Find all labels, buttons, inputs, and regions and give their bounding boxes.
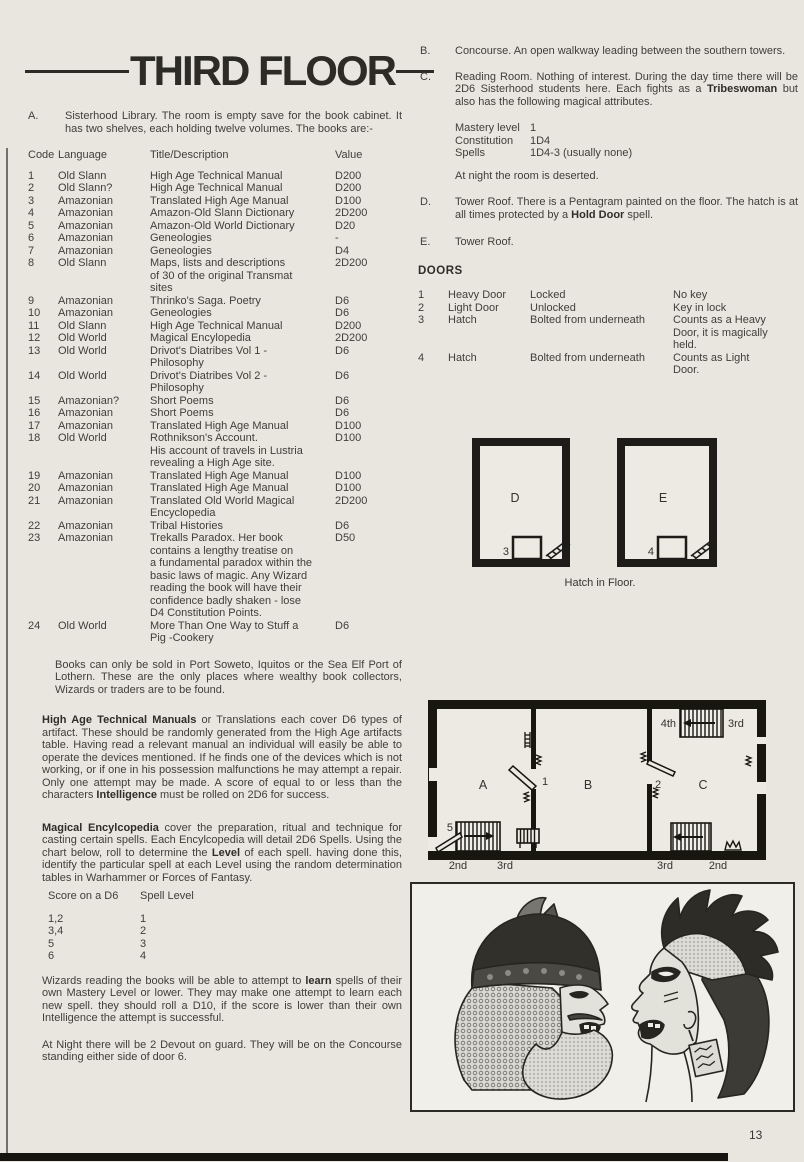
roof-diagram-caption: Hatch in Floor. xyxy=(455,577,745,589)
warrior-vs-punk-illustration xyxy=(412,884,793,1110)
book-code: 14 xyxy=(28,370,58,395)
book-value: D6 xyxy=(335,395,390,408)
label-2nd-bottom-right: 2nd xyxy=(709,860,727,872)
book-title: High Age Technical Manual xyxy=(150,182,335,195)
doors-table-row: 1 Heavy Door Locked No key xyxy=(418,289,798,302)
book-table-row: 8 Old Slann Maps, lists and descriptions… xyxy=(28,257,402,295)
book-table-row: 22 Amazonian Tribal Histories D6 xyxy=(28,520,402,533)
book-value: D4 xyxy=(335,245,390,258)
book-code: 15 xyxy=(28,395,58,408)
wall-bc-upper xyxy=(647,709,652,762)
book-code: 8 xyxy=(28,257,58,295)
book-table-row: 9 Amazonian Thrinko's Saga. Poetry D6 xyxy=(28,295,402,308)
door-state: Bolted from underneath xyxy=(530,314,673,352)
book-language: Old Slann? xyxy=(58,182,150,195)
spell-level: 2 xyxy=(140,925,402,938)
earring-icon xyxy=(689,1039,723,1076)
book-value: D6 xyxy=(335,370,390,395)
book-value: 2D200 xyxy=(335,332,390,345)
door-note: Counts as Light Door. xyxy=(673,352,791,377)
book-language: Amazonian? xyxy=(58,395,150,408)
doors-heading: DOORS xyxy=(418,265,798,278)
third-floor-plan: A B C 1 2 4th 3rd 3rd 2nd xyxy=(428,698,768,874)
doors-table-row: 2 Light Door Unlocked Key in lock xyxy=(418,302,798,315)
book-language: Old Slann xyxy=(58,257,150,295)
book-title: Geneologies xyxy=(150,232,335,245)
room-e-letter: E xyxy=(659,491,667,505)
book-value: 2D200 xyxy=(335,495,390,520)
book-table-row: 21 Amazonian Translated Old World Magica… xyxy=(28,495,402,520)
page-title: THIRD FLOOR xyxy=(129,65,396,78)
stairs-4th-3rd-icon xyxy=(680,709,723,737)
book-code: 7 xyxy=(28,245,58,258)
book-value: D6 xyxy=(335,307,390,320)
door-5-number: 5 xyxy=(447,822,453,834)
book-value: D6 xyxy=(335,407,390,420)
book-value: D100 xyxy=(335,195,390,208)
bold-hold-door: Hold Door xyxy=(571,209,624,221)
book-code: 9 xyxy=(28,295,58,308)
label-4th: 4th xyxy=(661,718,676,730)
book-language: Amazonian xyxy=(58,295,150,308)
scanned-book-page: THIRD FLOOR A. Sisterhood Library. The r… xyxy=(0,0,804,1162)
header-language: Language xyxy=(58,149,150,162)
book-table-header: Code Language Title/Description Value xyxy=(28,149,402,162)
book-code: 20 xyxy=(28,482,58,495)
book-table-row: 18 Old World Rothnikson's Account. His a… xyxy=(28,432,402,470)
book-language: Old Slann xyxy=(58,170,150,183)
book-language: Amazonian xyxy=(58,495,150,520)
book-code: 23 xyxy=(28,532,58,620)
para-wizards-learn: Wizards reading the books will be able t… xyxy=(42,975,402,1025)
book-value: D50 xyxy=(335,532,390,620)
book-table-row: 23 Amazonian Trekalls Paradox. Her book … xyxy=(28,532,402,620)
book-language: Amazonian xyxy=(58,532,150,620)
para-text: must be rolled on 2D6 for success. xyxy=(157,789,329,801)
book-table-row: 24 Old World More Than One Way to Stuff … xyxy=(28,620,402,645)
door-state: Locked xyxy=(530,289,673,302)
book-table-row: 2 Old Slann? High Age Technical Manual D… xyxy=(28,182,402,195)
stat-name: Spells xyxy=(455,147,530,160)
stat-row: Mastery level 1 xyxy=(455,122,798,135)
stat-name: Constitution xyxy=(455,135,530,148)
book-code: 11 xyxy=(28,320,58,333)
scan-edge-left xyxy=(6,148,8,1156)
right-wall-slit-lower xyxy=(757,782,766,794)
book-value: D100 xyxy=(335,482,390,495)
left-wall-slit xyxy=(429,768,437,781)
spell-table-row: 3,4 2 xyxy=(48,925,402,938)
stat-row: Spells 1D4-3 (usually none) xyxy=(455,147,798,160)
book-code: 19 xyxy=(28,470,58,483)
door-number: 2 xyxy=(418,302,448,315)
section-d-label: D. xyxy=(420,196,431,209)
book-title: Drivot's Diatribes Vol 1 - Philosophy xyxy=(150,345,335,370)
door-note: Counts as a Heavy Door, it is magically … xyxy=(673,314,791,352)
title-rule-left xyxy=(25,70,129,73)
wall-ab-upper xyxy=(531,709,536,769)
door-type: Heavy Door xyxy=(448,289,530,302)
book-value: D100 xyxy=(335,432,390,470)
bold-intelligence: Intelligence xyxy=(96,789,157,801)
spell-table-rows: 1,2 1 3,4 2 5 3 6 4 xyxy=(48,913,402,963)
book-language: Old World xyxy=(58,370,150,395)
door-note: Key in lock xyxy=(673,302,791,315)
warrior-head-drawing xyxy=(455,898,612,1099)
doors-table-row: 4 Hatch Bolted from underneath Counts as… xyxy=(418,352,798,377)
spell-score: 6 xyxy=(48,950,140,963)
book-code: 16 xyxy=(28,407,58,420)
label-3rd-bottom-left: 3rd xyxy=(497,860,513,872)
hatch-3-icon xyxy=(513,537,541,559)
bold-level: Level xyxy=(212,847,240,859)
book-value: D6 xyxy=(335,620,390,645)
book-table-row: 11 Old Slann High Age Technical Manual D… xyxy=(28,320,402,333)
section-c-label: C. xyxy=(420,71,431,84)
book-code: 13 xyxy=(28,345,58,370)
book-title: Geneologies xyxy=(150,307,335,320)
para-text: Wizards reading the books will be able t… xyxy=(42,975,305,987)
book-table-row: 15 Amazonian? Short Poems D6 xyxy=(28,395,402,408)
book-code: 18 xyxy=(28,432,58,470)
book-title: Translated High Age Manual xyxy=(150,420,335,433)
book-value: D200 xyxy=(335,170,390,183)
door-number: 3 xyxy=(418,314,448,352)
tower-roof-diagram: D 3 E 4 xyxy=(455,430,745,590)
room-d-plan: D 3 xyxy=(472,438,570,567)
book-code: 5 xyxy=(28,220,58,233)
book-value: D100 xyxy=(335,420,390,433)
door-type: Hatch xyxy=(448,352,530,377)
section-d: D. Tower Roof. There is a Pentagram pain… xyxy=(415,196,798,221)
page-title-row: THIRD FLOOR xyxy=(25,48,402,94)
section-b-text: Concourse. An open walkway leading betwe… xyxy=(455,45,785,57)
book-code: 22 xyxy=(28,520,58,533)
book-title: Amazon-Old World Dictionary xyxy=(150,220,335,233)
book-code: 10 xyxy=(28,307,58,320)
book-language: Old World xyxy=(58,620,150,645)
section-b: B. Concourse. An open walkway leading be… xyxy=(415,45,798,58)
book-table-row: 3 Amazonian Translated High Age Manual D… xyxy=(28,195,402,208)
spell-score: 5 xyxy=(48,938,140,951)
room-e-plan: E 4 xyxy=(617,438,717,567)
para-at-night: At Night there will be 2 Devout on guard… xyxy=(42,1039,402,1064)
section-e-text: Tower Roof. xyxy=(455,236,514,248)
warrior-eye xyxy=(570,992,588,998)
book-language: Old World xyxy=(58,332,150,345)
section-a-text: Sisterhood Library. The room is empty sa… xyxy=(65,110,402,135)
book-value: D20 xyxy=(335,220,390,233)
stairs-2nd-3rd-icon xyxy=(456,822,500,851)
stairs-3rd-2nd-icon xyxy=(671,823,711,851)
book-value: - xyxy=(335,232,390,245)
spell-table-row: 6 4 xyxy=(48,950,402,963)
spell-level: 1 xyxy=(140,913,402,926)
book-table-row: 6 Amazonian Geneologies - xyxy=(28,232,402,245)
doors-table-row: 3 Hatch Bolted from underneath Counts as… xyxy=(418,314,798,352)
book-language: Amazonian xyxy=(58,195,150,208)
spell-table-header: Score on a D6 Spell Level xyxy=(48,890,402,903)
section-a: A. Sisterhood Library. The room is empty… xyxy=(25,110,402,135)
book-language: Amazonian xyxy=(58,307,150,320)
label-2nd-bottom-left: 2nd xyxy=(449,860,467,872)
book-title: Translated High Age Manual xyxy=(150,195,335,208)
book-language: Amazonian xyxy=(58,407,150,420)
bold-magical-encyclopedia: Magical Encylcopedia xyxy=(42,822,159,834)
room-c-letter: C xyxy=(698,778,707,792)
door-1-number: 1 xyxy=(542,776,548,788)
section-e: E. Tower Roof. xyxy=(415,236,798,249)
book-title: More Than One Way to Stuff a Pig -Cooker… xyxy=(150,620,335,645)
book-title: Maps, lists and descriptions of 30 of th… xyxy=(150,257,335,295)
book-title: Translated Old World Magical Encyclopedi… xyxy=(150,495,335,520)
book-code: 1 xyxy=(28,170,58,183)
stat-value: 1D4 xyxy=(530,135,798,148)
book-code: 4 xyxy=(28,207,58,220)
right-column: B. Concourse. An open walkway leading be… xyxy=(415,40,798,377)
book-language: Old World xyxy=(58,432,150,470)
label-3rd-bottom: 3rd xyxy=(657,860,673,872)
book-language: Amazonian xyxy=(58,207,150,220)
book-language: Amazonian xyxy=(58,220,150,233)
book-value: D200 xyxy=(335,182,390,195)
book-title: High Age Technical Manual xyxy=(150,320,335,333)
hatch-3-number: 3 xyxy=(503,546,509,558)
book-title: Magical Encylopedia xyxy=(150,332,335,345)
book-code: 17 xyxy=(28,420,58,433)
door-number: 4 xyxy=(418,352,448,377)
book-code: 21 xyxy=(28,495,58,520)
book-value: D200 xyxy=(335,320,390,333)
book-language: Amazonian xyxy=(58,232,150,245)
book-language: Old Slann xyxy=(58,320,150,333)
bold-learn: learn xyxy=(305,975,331,987)
spell-score: 3,4 xyxy=(48,925,140,938)
para-text: or Translations each cover D6 types of a… xyxy=(42,714,402,801)
stat-value: 1 xyxy=(530,122,798,135)
spell-level: 4 xyxy=(140,950,402,963)
book-table-row: 10 Amazonian Geneologies D6 xyxy=(28,307,402,320)
spell-table-row: 5 3 xyxy=(48,938,402,951)
book-code: 3 xyxy=(28,195,58,208)
book-table-row: 4 Amazonian Amazon-Old Slann Dictionary … xyxy=(28,207,402,220)
wall-bc-lower xyxy=(647,784,652,851)
punk-head-drawing xyxy=(632,890,778,1102)
room-b-letter: B xyxy=(584,778,592,792)
para-books-sold: Books can only be sold in Port Soweto, I… xyxy=(55,659,402,697)
book-value: 2D200 xyxy=(335,207,390,220)
book-value: D6 xyxy=(335,520,390,533)
scan-edge-bottom xyxy=(0,1153,728,1161)
hatch-4-icon xyxy=(658,537,686,559)
stat-row: Constitution 1D4 xyxy=(455,135,798,148)
doors-table: 1 Heavy Door Locked No key 2 Light Door … xyxy=(418,289,798,377)
section-b-label: B. xyxy=(420,45,430,58)
door-type: Light Door xyxy=(448,302,530,315)
reading-room-night: At night the room is deserted. xyxy=(455,170,798,183)
section-e-label: E. xyxy=(420,236,430,249)
book-title: Rothnikson's Account. His account of tra… xyxy=(150,432,335,470)
room-d-letter: D xyxy=(510,491,519,505)
book-table-row: 17 Amazonian Translated High Age Manual … xyxy=(28,420,402,433)
right-wall-slit-upper xyxy=(757,737,766,744)
section-a-label: A. xyxy=(28,110,38,123)
book-table-row: 1 Old Slann High Age Technical Manual D2… xyxy=(28,170,402,183)
book-table-row: 13 Old World Drivot's Diatribes Vol 1 - … xyxy=(28,345,402,370)
book-table-row: 16 Amazonian Short Poems D6 xyxy=(28,407,402,420)
book-title: Thrinko's Saga. Poetry xyxy=(150,295,335,308)
header-value: Value xyxy=(335,149,390,162)
para-magical-encyclopedia: Magical Encylcopedia cover the preparati… xyxy=(42,822,402,885)
book-table-row: 7 Amazonian Geneologies D4 xyxy=(28,245,402,258)
bold-high-age-manuals: High Age Technical Manuals xyxy=(42,714,196,726)
book-title: High Age Technical Manual xyxy=(150,170,335,183)
book-title: Drivot's Diatribes Vol 2 - Philosophy xyxy=(150,370,335,395)
book-table-row: 20 Amazonian Translated High Age Manual … xyxy=(28,482,402,495)
book-title: Amazon-Old Slann Dictionary xyxy=(150,207,335,220)
book-table-row: 5 Amazonian Amazon-Old World Dictionary … xyxy=(28,220,402,233)
label-3rd-top: 3rd xyxy=(728,718,744,730)
book-language: Amazonian xyxy=(58,482,150,495)
book-title: Short Poems xyxy=(150,395,335,408)
book-language: Amazonian xyxy=(58,470,150,483)
book-language: Amazonian xyxy=(58,245,150,258)
book-title: Translated High Age Manual xyxy=(150,470,335,483)
spell-table-row: 1,2 1 xyxy=(48,913,402,926)
bold-tribeswoman: Tribeswoman xyxy=(707,83,777,95)
hatch-4-number: 4 xyxy=(648,546,654,558)
page-number: 13 xyxy=(749,1128,762,1142)
door-state: Bolted from underneath xyxy=(530,352,673,377)
book-code: 6 xyxy=(28,232,58,245)
book-title: Tribal Histories xyxy=(150,520,335,533)
book-value: D6 xyxy=(335,345,390,370)
student-stats: Mastery level 1 Constitution 1D4 Spells … xyxy=(455,122,798,160)
left-column: THIRD FLOOR A. Sisterhood Library. The r… xyxy=(25,40,402,1064)
spell-col1-header: Score on a D6 xyxy=(48,890,140,903)
para-text: spell. xyxy=(624,209,653,221)
book-table-row: 14 Old World Drivot's Diatribes Vol 2 - … xyxy=(28,370,402,395)
para-high-age-manuals: High Age Technical Manuals or Translatio… xyxy=(42,714,402,802)
book-table-row: 19 Amazonian Translated High Age Manual … xyxy=(28,470,402,483)
book-title: Short Poems xyxy=(150,407,335,420)
illustration-frame xyxy=(410,882,795,1112)
door-note: No key xyxy=(673,289,791,302)
stat-value: 1D4-3 (usually none) xyxy=(530,147,798,160)
header-title: Title/Description xyxy=(150,149,335,162)
book-table-row: 12 Old World Magical Encylopedia 2D200 xyxy=(28,332,402,345)
book-code: 24 xyxy=(28,620,58,645)
spell-level: 3 xyxy=(140,938,402,951)
door-type: Hatch xyxy=(448,314,530,352)
door-number: 1 xyxy=(418,289,448,302)
book-value: D6 xyxy=(335,295,390,308)
book-value: 2D200 xyxy=(335,257,390,295)
book-title: Translated High Age Manual xyxy=(150,482,335,495)
corner-object-icon xyxy=(725,841,741,850)
book-language: Amazonian xyxy=(58,520,150,533)
spell-score: 1,2 xyxy=(48,913,140,926)
header-code: Code xyxy=(28,149,58,162)
book-code: 12 xyxy=(28,332,58,345)
spell-col2-header: Spell Level xyxy=(140,890,402,903)
book-table-rows: 1 Old Slann High Age Technical Manual D2… xyxy=(28,170,402,645)
book-title: Trekalls Paradox. Her book contains a le… xyxy=(150,532,335,620)
book-table: Code Language Title/Description Value 1 … xyxy=(28,149,402,645)
section-c: C. Reading Room. Nothing of interest. Du… xyxy=(415,71,798,109)
stat-name: Mastery level xyxy=(455,122,530,135)
book-value: D100 xyxy=(335,470,390,483)
book-code: 2 xyxy=(28,182,58,195)
book-title: Geneologies xyxy=(150,245,335,258)
book-language: Old World xyxy=(58,345,150,370)
door-state: Unlocked xyxy=(530,302,673,315)
room-a-letter: A xyxy=(479,778,488,792)
book-language: Amazonian xyxy=(58,420,150,433)
